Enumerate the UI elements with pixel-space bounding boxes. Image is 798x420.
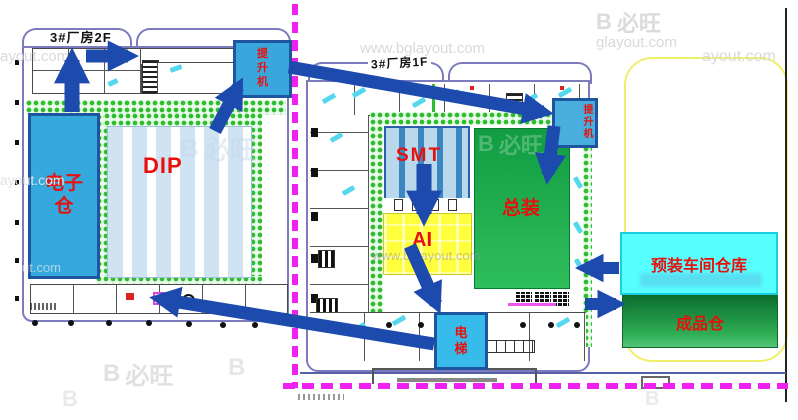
linked-boxes	[487, 340, 535, 353]
boundary-dashed-horizontal	[283, 383, 788, 389]
column-dot	[252, 322, 258, 328]
column-tick	[15, 60, 19, 65]
electronics-warehouse-label: 电子仓	[42, 173, 86, 219]
hoist-right-label: 提升机	[583, 105, 594, 141]
red-mark	[126, 293, 134, 300]
green-corridor	[104, 113, 262, 126]
pillar	[311, 254, 318, 263]
magenta-mark	[153, 292, 169, 305]
column-tick	[15, 220, 19, 225]
column-tick	[15, 100, 19, 105]
hoist-right-box: 提升机	[552, 98, 598, 148]
logo-text: 必旺	[125, 356, 173, 391]
ai-label: AI	[412, 229, 432, 252]
magenta-mark	[508, 303, 556, 306]
column-tick	[15, 180, 19, 185]
small-box	[430, 199, 439, 211]
left-top-rooms	[32, 48, 142, 94]
column-dot	[574, 322, 580, 328]
column-dot	[32, 320, 38, 326]
elevator-box: 电梯	[434, 312, 488, 370]
column-dot	[146, 320, 152, 326]
biwang-logo: B 必旺	[103, 356, 173, 391]
logo-b-icon: B	[645, 388, 659, 411]
small-box	[448, 199, 457, 211]
column-tick	[15, 296, 19, 301]
pillar	[311, 168, 318, 177]
column-dot	[520, 322, 526, 328]
green-corridor	[370, 112, 572, 125]
right-edge-line	[785, 8, 787, 402]
logo-text: 必旺	[617, 6, 661, 38]
column-dot	[186, 321, 192, 327]
faded-text-remnant	[640, 273, 762, 287]
pillar	[311, 128, 318, 137]
logo-b-icon: B	[596, 9, 612, 35]
circle-mark	[182, 294, 195, 307]
factory-flow-diagram: ayout.com www.bglayout.com glayout.com a…	[0, 0, 798, 420]
column-tick	[15, 140, 19, 145]
dip-area	[107, 126, 252, 278]
logo-b-icon: B	[62, 386, 78, 412]
finished-goods-warehouse-box: 成品仓	[622, 295, 778, 348]
hoist-left-label: 提升机	[256, 48, 269, 89]
small-box	[412, 199, 421, 211]
elevator-label: 电梯	[454, 325, 469, 356]
watermark-url: glayout.com	[596, 34, 677, 51]
red-mark	[560, 86, 564, 90]
column-dot	[386, 322, 392, 328]
biwang-logo: B	[645, 388, 659, 411]
logo-b-icon: B	[228, 354, 245, 382]
smt-label: SMT	[396, 145, 442, 167]
hoist-left-box: 提升机	[233, 40, 292, 98]
red-mark	[470, 86, 474, 90]
preassembly-warehouse-label: 预装车间仓库	[651, 252, 747, 276]
tiny-text-smudge	[30, 303, 58, 310]
green-mark	[432, 84, 435, 115]
dip-label: DIP	[143, 153, 183, 179]
pillar	[311, 212, 318, 221]
biwang-logo: B 必旺	[596, 6, 661, 38]
stairs-mark	[318, 250, 335, 268]
column-dot	[68, 320, 74, 326]
column-dot	[418, 322, 424, 328]
finished-goods-warehouse-label: 成品仓	[676, 310, 724, 334]
building-left-title: 3#厂房2F	[50, 27, 112, 46]
caption-smudge	[298, 394, 344, 400]
biwang-logo: B	[228, 354, 245, 382]
biwang-logo: B	[62, 386, 78, 412]
column-tick	[15, 258, 19, 263]
boundary-dashed-vertical	[292, 4, 298, 388]
dock-bar	[397, 378, 497, 382]
final-assembly-label: 总装	[502, 193, 540, 220]
column-dot	[106, 320, 112, 326]
column-dot	[548, 322, 554, 328]
building-right-title: 3#厂房1F	[368, 52, 432, 72]
logo-b-icon: B	[103, 360, 120, 388]
small-box	[394, 199, 403, 211]
electronics-warehouse-area: 电子仓	[28, 113, 100, 279]
column-dot	[220, 322, 226, 328]
